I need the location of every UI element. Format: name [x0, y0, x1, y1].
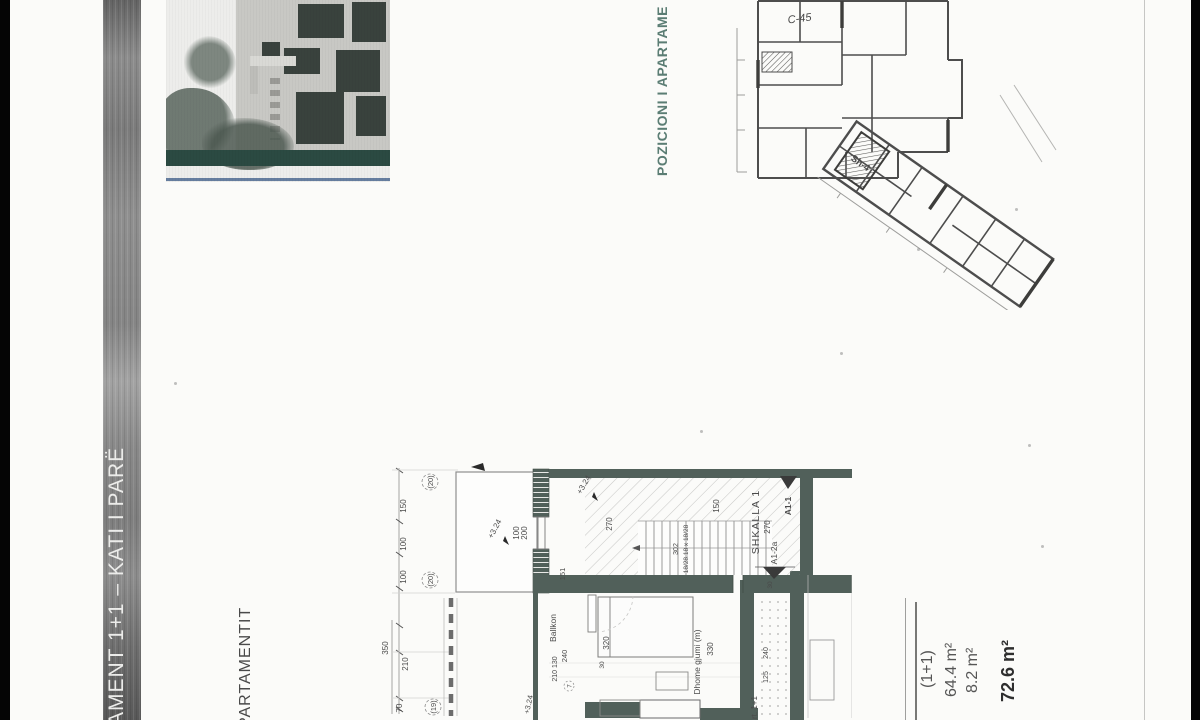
- summary-balcony-area: 8.2 m²: [965, 628, 985, 693]
- dim-label: 240: [560, 650, 569, 663]
- grid-bubble: 7: [568, 684, 574, 688]
- scan-speck: [870, 167, 873, 170]
- dim-label: 270: [763, 520, 772, 534]
- section-label: A1-2a: [769, 541, 779, 564]
- dim-label: 200: [520, 526, 529, 540]
- dim-label: 210 130: [552, 656, 559, 681]
- page-fold-line: [1144, 0, 1145, 720]
- photo-window: [298, 4, 344, 38]
- dim-label: 240: [763, 647, 770, 659]
- dim-label: 151: [558, 568, 567, 581]
- dim-label: 100: [399, 537, 408, 551]
- dim-label: 30: [599, 661, 606, 669]
- key-plan-stair-hatch: [762, 52, 792, 72]
- scanned-sheet: AMENT 1+1 – KATI I PARË POZICIONI I APAR…: [0, 0, 1200, 720]
- key-plan-rotated-wing: Sh-4: [814, 121, 1053, 310]
- key-plan-drawing: C-45 Sh-4: [690, 0, 1070, 310]
- dim-label: 125: [763, 671, 770, 683]
- apartment-label: rt. 1+1: [750, 696, 759, 719]
- scan-speck: [174, 382, 177, 385]
- dim-label: 100: [512, 526, 521, 540]
- photo-window: [356, 96, 386, 136]
- dim-label: 320: [602, 636, 611, 650]
- scan-speck: [1028, 444, 1031, 447]
- photo-facade: [236, 0, 390, 160]
- dim-label: 150: [712, 499, 721, 513]
- summary-rule: [905, 598, 906, 720]
- photo-window: [336, 50, 380, 92]
- dim-label: 30: [767, 581, 774, 589]
- dim-label: 210: [401, 657, 410, 671]
- photo-window: [262, 42, 280, 56]
- scan-speck: [840, 352, 843, 355]
- door-leaf: [588, 595, 596, 632]
- summary-unit-type: (1+1): [920, 632, 940, 688]
- room-label: Ballkon: [548, 614, 558, 642]
- photo-hedge-band: [166, 150, 390, 166]
- photo-vegetation: [166, 88, 236, 166]
- dim-label: 330: [706, 642, 715, 656]
- scan-speck: [700, 430, 703, 433]
- wall-outline-cut: [640, 700, 700, 718]
- stair-note: 18/28.18 x 18/28: [683, 524, 690, 573]
- scan-speck: [1041, 545, 1044, 548]
- scan-black-bar-left: [0, 0, 10, 720]
- building-photo: [166, 0, 390, 182]
- north-arrow-icon: [471, 463, 485, 471]
- stair-name: SHKALLA 1: [750, 490, 762, 554]
- dim-label: 302: [673, 543, 680, 555]
- photo-window: [284, 48, 320, 74]
- sheet-title-vertical: AMENT 1+1 – KATI I PARË: [106, 424, 140, 720]
- balcony: Ballkon 240 210 130 30 7 +3.24: [444, 598, 606, 716]
- key-plan-faint-lines: [1000, 85, 1056, 162]
- dim-label: 350: [381, 641, 390, 655]
- furniture: [656, 672, 688, 690]
- photo-frame-line: [166, 178, 390, 181]
- photo-vegetation: [202, 118, 294, 170]
- key-plan-title: POZICIONI I APARTAME: [655, 0, 679, 176]
- section-label: A1-1: [783, 497, 793, 516]
- dimension-chain: 150 100 100 350 210 70 (20) (20) (19): [381, 468, 458, 715]
- scan-black-bar-right: [1191, 0, 1200, 720]
- grid-bubble: (20): [426, 475, 435, 489]
- summary-net-area: 64.4 m²: [944, 622, 964, 697]
- photo-stairs: [270, 78, 280, 140]
- summary-rule: [915, 602, 917, 720]
- grid-bubble: (20): [426, 573, 435, 587]
- photo-vegetation: [184, 36, 236, 88]
- grid-bubble: (19): [429, 700, 438, 714]
- dim-label: 270: [605, 517, 614, 531]
- dim-label: 100: [399, 570, 408, 584]
- dim-label: 70: [395, 703, 404, 712]
- photo-balcony-slab: [250, 56, 296, 66]
- bed: [598, 597, 693, 657]
- dim-label: 150: [399, 499, 408, 513]
- room-label: Dhome gjumi (m): [692, 629, 702, 694]
- plan-caption-vertical: PARTAMENTIT: [238, 606, 260, 720]
- photo-window: [352, 2, 386, 42]
- photo-pillar: [250, 66, 258, 94]
- bedroom: Dhome gjumi (m) 320 330: [549, 595, 740, 716]
- scan-speck: [1015, 208, 1018, 211]
- apartment-floor-plan: 150 100 100 350 210 70 (20) (20) (19) 20…: [380, 455, 852, 720]
- stair-hall: 302 18/28.18 x 18/28 +3.24 270 151 150 2…: [558, 473, 800, 588]
- photo-window: [296, 92, 344, 144]
- summary-total-area: 72.6 m²: [999, 618, 1023, 702]
- key-plan-unit-label: C-45: [787, 12, 813, 27]
- scan-speck: [917, 248, 920, 251]
